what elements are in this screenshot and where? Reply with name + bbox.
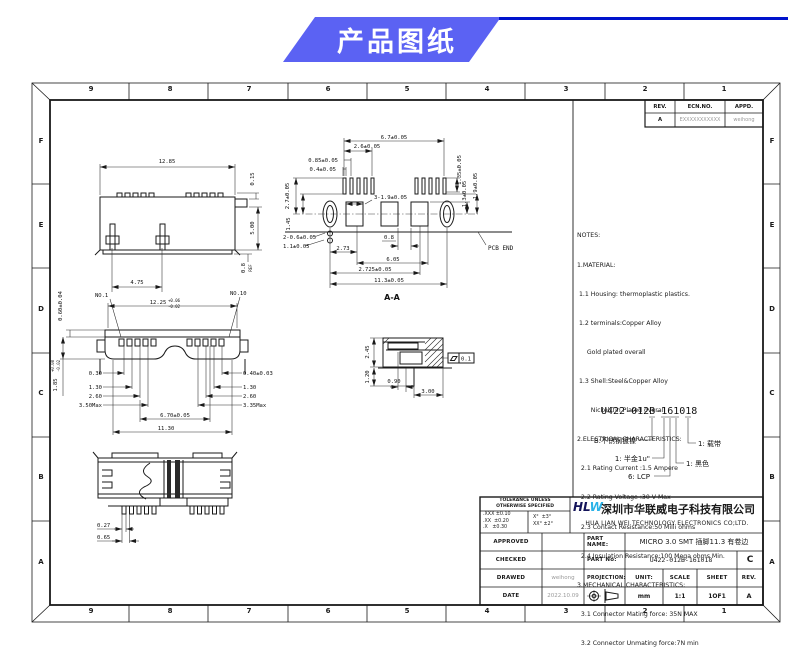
dim-label: 2.60 [89,394,102,400]
part-name-value: MICRO 3.0 SMT 插脚11.3 有卷边 [626,534,762,550]
notes-line: 3.1 Connector Mating force: 35N MAX [577,610,767,620]
zone-row: B [36,473,46,481]
unit-label: UNIT: [626,570,662,586]
pcb-end-label: PCB END [488,245,514,252]
dim-label: 0.60±0.04 [58,290,64,320]
dim-label: 2.73 [336,246,349,252]
dim-label: 0.15 [250,172,256,185]
dim-label-group: 1.85 +0.08 -0.02 [50,359,61,391]
zone-col: 8 [165,607,175,615]
zone-row: E [767,221,777,229]
logo-hl: HL [573,500,590,514]
dim-label: 2.7±0.05 [285,183,291,210]
rev-label: REV. [736,570,762,586]
dim-label: 12.25 [150,300,167,306]
company-name-cn: 深圳市华联威电子科技有限公司 [601,501,755,517]
dim-tol: +0.06 [168,298,181,303]
dim-label: 1.1±0.05 [283,244,310,250]
zone-col: 4 [482,607,492,615]
scale-label: SCALE [664,570,696,586]
tolerance-header: TOLERANCE UNLESS OTHERWISE SPECIFIED [481,498,569,510]
dim-label: 1.30 [89,385,102,391]
dim-label: 0.27 [97,523,110,529]
dim-label: 0.30 [89,371,102,377]
zone-row: D [767,305,777,313]
dim-label: 0.8 [241,263,247,273]
dim-label: 2-0.6±0.05 [283,235,316,241]
view-bottom: 0.27 0.65 [93,452,237,543]
flatness-frame: 0.1 [448,353,474,363]
notes-line: Nickel/Tin Plated overall [577,406,767,416]
part-no-rev: C [738,552,762,568]
zone-col: 1 [719,85,729,93]
zone-col: 6 [323,85,333,93]
dim-label: 3.50Max [79,403,103,409]
tolerance-linear-xxx: .XXX ±0.10 [483,512,527,519]
sheet-label: SHEET [698,570,736,586]
rev-value: A [736,588,762,604]
checked-label: CHECKED [481,552,541,568]
view-front: NO.1 NO.10 12.25 +0.06 -0.02 0.60±0.04 1… [50,290,273,435]
flatness-value: 0.1 [461,357,471,363]
rev-table-ecn-value: EXXXXXXXXXXX [676,114,724,126]
tolerance-angular-xx: XX° ±2° [533,522,569,529]
unit-value: mm [626,588,662,604]
zone-col: 7 [244,607,254,615]
dim-label: 4.75 [130,280,143,286]
dim-label: 0.4±0.05 [310,167,337,173]
part-no-label: PART No: [585,552,626,568]
zone-row: E [36,221,46,229]
dim-label: 6.7±0.05 [381,135,408,141]
zone-row: C [767,389,777,397]
tolerance-linear: .XXX ±0.10 .XX ±0.20 .X ±0.30 [483,512,527,532]
zone-row: A [767,558,777,566]
notes-line: 1.3 Shell:Steel&Copper Alloy [577,377,767,387]
dim-label: 11.3±0.05 [374,278,404,284]
dim-label: 11.30 [158,426,175,432]
part-name-label: PART NAME: [585,534,626,550]
dim-label: 1.9±0.05 [473,173,479,200]
pin-no10-label: NO.10 [230,291,247,297]
zone-col: 7 [244,85,254,93]
notes-line: 1.1 Housing: thermoplastic plastics. [577,290,767,300]
notes-line: Gold plated overall [577,348,767,358]
dim-label: 1.3±0.05 [462,181,468,208]
dim-label: 6.05 [386,257,399,263]
svg-text:-0.02: -0.02 [56,359,61,372]
dim-label: 1.30 [243,385,256,391]
dim-label: 0.8 [384,235,394,241]
pin-no1-label: NO.1 [95,293,108,299]
view-side-section: 2.45 1.20 0.90 3.00 0.1 [365,338,474,398]
dim-label: 3.00 [421,389,434,395]
tolerance-angular: X° ±3° XX° ±2° [533,512,569,532]
dim-label: 1.45 [286,217,292,230]
dim-tol: -0.02 [168,304,181,309]
notes-line: 2.1 Rating Current :1.5 Ampere [577,464,767,474]
zone-col: 5 [402,85,412,93]
zone-col: 3 [561,85,571,93]
scale-value: 1:1 [664,588,696,604]
dim-label: 2.60 [243,394,256,400]
section-caption: A-A [384,293,401,302]
rev-table-rev-value: A [646,114,674,126]
view-elevation: 12.85 0.15 5.00 0.8 REF 4.75 [95,159,262,292]
part-no-value: U422-012B-161018 [626,552,736,568]
zone-row: A [36,558,46,566]
projection-label: PROJECTION: [585,570,627,586]
zone-row: B [767,473,777,481]
dim-label: 12.85 [159,159,176,165]
zone-col: 2 [640,85,650,93]
tolerance-linear-x: .X ±0.30 [483,525,527,532]
rev-table-appd-value: weihong [726,114,762,126]
zone-col: 4 [482,85,492,93]
dim-label: 2.45 [365,345,371,358]
company-logo: HLW [573,500,603,514]
zone-row: C [36,389,46,397]
sheet-value: 1OF1 [698,588,736,604]
notes-line: NOTES: [577,231,767,241]
zone-col: 3 [561,607,571,615]
dim-label: 0.40±0.03 [243,371,273,377]
tolerance-angular-x: X° ±3° [533,515,569,522]
dim-label: 0.90 [387,379,400,385]
zone-col: 9 [86,607,96,615]
dim-label: 3-1.9±0.05 [374,195,407,201]
rev-table-header-ecn: ECN.NO. [676,101,724,112]
zone-col: 6 [323,607,333,615]
zone-row: D [36,305,46,313]
dim-label: 0.85±0.05 [308,158,338,164]
dim-label: 2.6±0.05 [354,144,381,150]
view-section-aa: 6.7±0.05 2.6±0.05 0.85±0.05 0.4±0.05 1.3… [283,135,514,302]
dim-label: 6.70±0.05 [160,413,190,419]
zone-row: F [36,137,46,145]
notes-line: 3.2 Connector Unmating force:7N min [577,639,767,649]
zone-col: 8 [165,85,175,93]
svg-text:+0.08: +0.08 [50,359,55,372]
dim-label: 1.20 [365,370,371,383]
zone-row: F [767,137,777,145]
dim-label: REF [248,264,253,272]
rev-table-header-rev: REV. [646,101,674,112]
zone-col: 9 [86,85,96,93]
dim-label: 0.65 [97,535,110,541]
drawing-page: 产品图纸 [0,0,790,663]
drawed-value: weihong [543,570,583,586]
approved-label: APPROVED [481,534,541,550]
zone-col: 5 [402,607,412,615]
drawed-label: DRAWED [481,570,541,586]
tolerance-header-line2: OTHERWISE SPECIFIED [496,504,554,510]
dim-label: 2.725±0.05 [358,267,391,273]
rev-table-header-appd: APPD. [726,101,762,112]
notes-line: 1.MATERIAL: [577,261,767,271]
notes-line: 2.ELECTRICAL CHARACTERISTICS: [577,435,767,445]
svg-text:1.85: 1.85 [53,378,59,391]
company-name-en: HUA LIAN WEI TECHNOLOGY ELECTRONICS CO;L… [572,520,762,527]
dim-label: 1.35±0.05 [457,155,463,185]
date-value: 2022.10.09 [543,588,583,604]
notes-line: 1.2 terminals:Copper Alloy [577,319,767,329]
dim-label: 5.00 [250,221,256,234]
dim-label: 3.35Max [243,403,267,409]
date-label: DATE [481,588,541,604]
